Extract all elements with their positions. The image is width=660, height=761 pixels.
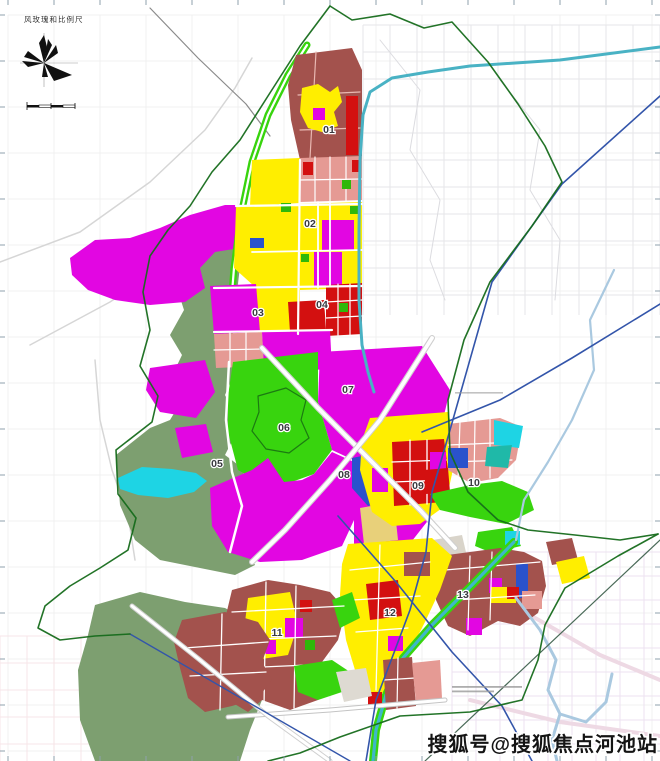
- district11-red: [300, 600, 312, 612]
- green-bit-3: [350, 206, 358, 214]
- compass-block: 风玫瑰和比例尺: [24, 14, 144, 116]
- bottom-pale-parcel: [336, 668, 372, 702]
- green-bit-2: [301, 254, 309, 262]
- district02-magenta-e: [322, 220, 354, 250]
- district10-cyan: [494, 420, 523, 448]
- district02-yellow-west: [250, 158, 300, 206]
- river-north: [359, 47, 660, 392]
- district-label-09: 09: [412, 480, 424, 492]
- district-label-08: 08: [338, 469, 350, 481]
- district-label-05: 05: [211, 458, 223, 470]
- district-label-13: 13: [457, 589, 469, 601]
- stream-east: [516, 270, 614, 540]
- fine-print-note-3: [455, 392, 503, 394]
- railway-line: [150, 8, 270, 136]
- district06-green: [228, 352, 332, 484]
- compass-label: 风玫瑰和比例尺: [24, 14, 144, 25]
- district02-blue-parcel: [250, 238, 264, 248]
- district10-blue: [448, 448, 468, 468]
- planning-map-page: 01020304050607080910111213 风玫瑰和比例尺: [0, 0, 660, 761]
- district11-magenta-1: [285, 618, 303, 638]
- wind-rose-icon: [18, 29, 144, 96]
- district-label-07: 07: [342, 384, 354, 396]
- district11-green: [305, 640, 315, 650]
- district-label-10: 10: [468, 477, 480, 489]
- district-label-11: 11: [271, 627, 282, 639]
- expressway-2: [422, 304, 660, 432]
- district13-salmon: [522, 591, 542, 609]
- district-label-03: 03: [252, 307, 264, 319]
- salmon-band-green: [342, 180, 351, 189]
- district10-red: [424, 468, 450, 494]
- ne-street-grid: [363, 25, 660, 315]
- district-label-02: 02: [304, 218, 316, 230]
- watermark-text: 搜狐号@搜狐焦点河池站: [427, 728, 658, 757]
- district-label-12: 12: [384, 607, 396, 619]
- fine-print-note-1: [452, 686, 522, 688]
- fine-print-note-2: [452, 691, 494, 693]
- district-label-06: 06: [278, 422, 290, 434]
- salmon-band-red: [303, 162, 313, 175]
- district10-teal: [485, 445, 512, 468]
- district01-magenta-parcel: [313, 108, 325, 120]
- village-maroon: [174, 612, 272, 712]
- district04-green: [339, 303, 348, 312]
- district-label-01: 01: [323, 124, 335, 136]
- district12-salmon-s: [412, 660, 442, 702]
- district-label-04: 04: [316, 299, 328, 311]
- district01-red-parcel: [346, 96, 358, 155]
- scale-bar: [26, 98, 144, 116]
